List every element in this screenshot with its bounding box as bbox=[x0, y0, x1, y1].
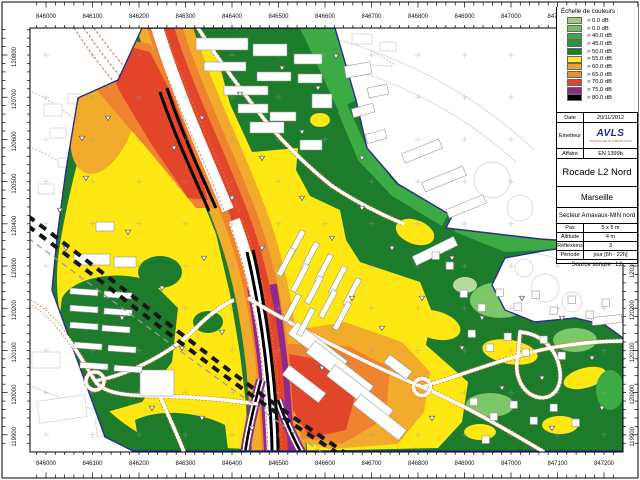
axis-label: 120800 bbox=[12, 46, 18, 67]
axis-label: 846800 bbox=[408, 14, 429, 20]
parameter-label: Réflexions bbox=[557, 242, 584, 250]
axis-label: 120300 bbox=[12, 257, 18, 278]
legend-entry-label: > 65.0 dB bbox=[587, 72, 612, 78]
axis-label: 846600 bbox=[315, 461, 336, 467]
project-title-row: Rocade L2 Nord bbox=[557, 158, 637, 186]
axis-label: 846500 bbox=[268, 14, 289, 20]
legend-entry-label: > 80.0 dB bbox=[587, 95, 612, 101]
axis-label: 120000 bbox=[630, 384, 636, 405]
legend-entry-label: > 0.0 dB bbox=[587, 26, 609, 32]
axis-label: 847100 bbox=[547, 461, 568, 467]
color-scale-legend: Échelle de couleurs : > 0.0 dB> 0.0 dB> … bbox=[556, 7, 638, 112]
parameter-label: Pas bbox=[557, 224, 584, 232]
legend-entry: > 60.0 dB bbox=[561, 63, 638, 71]
legend-entry: > 40.0 dB bbox=[561, 32, 638, 40]
source-row: Source sonore : L2 bbox=[557, 259, 637, 270]
axis-label: 846600 bbox=[315, 14, 336, 20]
axis-label: 120200 bbox=[630, 300, 636, 321]
axis-label: 846400 bbox=[222, 14, 243, 20]
sound-source: Source sonore : L2 bbox=[557, 260, 637, 270]
legend-entries: > 0.0 dB> 0.0 dB> 40.0 dB> 45.0 dB> 50.0… bbox=[561, 17, 638, 102]
legend-color-swatch bbox=[567, 71, 582, 78]
legend-color-swatch bbox=[567, 40, 582, 47]
legend-entry-label: > 60.0 dB bbox=[587, 64, 612, 70]
legend-color-swatch bbox=[567, 33, 582, 40]
emitter-logo-cell: AVLS ACOUSTIQUE VIBRATIONS bbox=[584, 123, 637, 148]
legend-entry-label: > 40.0 dB bbox=[587, 33, 612, 39]
parameter-value: 5 x 5 m bbox=[584, 224, 637, 232]
sector-name: Secteur Arnavaux-MIN nord bbox=[557, 208, 637, 223]
legend-color-swatch bbox=[567, 79, 582, 86]
legend-entry-label: > 0.0 dB bbox=[587, 18, 609, 24]
legend-color-swatch bbox=[567, 63, 582, 70]
parameter-row: Altitude4 m bbox=[557, 232, 637, 241]
axis-label: 120400 bbox=[12, 215, 18, 236]
parameter-value: 4 m bbox=[584, 233, 637, 241]
avls-logo-caption: ACOUSTIQUE VIBRATIONS bbox=[589, 140, 632, 143]
legend-entry-label: > 70.0 dB bbox=[587, 79, 612, 85]
axis-label: 120100 bbox=[12, 342, 18, 363]
axis-label: 120000 bbox=[12, 384, 18, 405]
avls-logo: AVLS bbox=[597, 129, 625, 139]
legend-color-swatch bbox=[567, 17, 582, 24]
parameter-rows: Pas5 x 5 mAltitude4 mRéflexions3Périodej… bbox=[557, 223, 637, 259]
emitter-row: Emetteur AVLS ACOUSTIQUE VIBRATIONS bbox=[557, 122, 637, 148]
axis-label: 846100 bbox=[82, 14, 103, 20]
legend-entry: > 55.0 dB bbox=[561, 55, 638, 63]
emitter-label: Emetteur bbox=[557, 123, 584, 148]
parameter-value: jour [6h - 22h] bbox=[584, 251, 637, 259]
legend-entry: > 70.0 dB bbox=[561, 79, 638, 87]
legend-entry: > 80.0 dB bbox=[561, 94, 638, 102]
info-panel: Date 20/11/2012 Emetteur AVLS ACOUSTIQUE… bbox=[556, 112, 638, 264]
legend-color-swatch bbox=[567, 25, 582, 32]
axis-label: 846200 bbox=[129, 461, 150, 467]
axis-label: 120100 bbox=[630, 342, 636, 363]
axis-label: 846100 bbox=[82, 461, 103, 467]
legend-entry: > 0.0 dB bbox=[561, 25, 638, 33]
parameter-row: Réflexions3 bbox=[557, 241, 637, 250]
noise-map-canvas: 8460008460008461008461008462008462008463… bbox=[0, 0, 640, 480]
axis-label: 846700 bbox=[361, 461, 382, 467]
parameter-label: Période bbox=[557, 251, 584, 259]
legend-entry-label: > 55.0 dB bbox=[587, 56, 612, 62]
project-title: Rocade L2 Nord bbox=[557, 159, 637, 186]
legend-color-swatch bbox=[567, 56, 582, 63]
parameter-row: Périodejour [6h - 22h] bbox=[557, 250, 637, 259]
axis-label: 120600 bbox=[12, 131, 18, 152]
parameter-label: Altitude bbox=[557, 233, 584, 241]
axis-label: 847000 bbox=[501, 461, 522, 467]
parameter-row: Pas5 x 5 m bbox=[557, 223, 637, 232]
axis-label: 846000 bbox=[36, 14, 57, 20]
axis-label: 847200 bbox=[594, 461, 615, 467]
legend-entry-label: > 45.0 dB bbox=[587, 41, 612, 47]
city-name: Marseille bbox=[557, 187, 637, 207]
legend-entry-label: > 50.0 dB bbox=[587, 49, 612, 55]
noise-map-page: 8460008460008461008461008462008462008463… bbox=[0, 0, 640, 480]
axis-label: 119900 bbox=[630, 426, 636, 446]
affaire-label: Affaire bbox=[557, 149, 584, 158]
axis-label: 120700 bbox=[12, 89, 18, 110]
axis-label: 846500 bbox=[268, 461, 289, 467]
grid-cross-overlay bbox=[30, 28, 623, 452]
legend-entry-label: > 75.0 dB bbox=[587, 87, 612, 93]
axis-label: 846900 bbox=[454, 14, 475, 20]
legend-entry: > 50.0 dB bbox=[561, 48, 638, 56]
legend-color-swatch bbox=[567, 94, 582, 101]
axis-label: 846700 bbox=[361, 14, 382, 20]
legend-color-swatch bbox=[567, 87, 582, 94]
legend-entry: > 0.0 dB bbox=[561, 17, 638, 25]
affaire-value: EN 1399b bbox=[584, 149, 637, 158]
date-label: Date bbox=[557, 113, 584, 122]
axis-label: 846900 bbox=[454, 461, 475, 467]
axis-label: 846300 bbox=[175, 461, 196, 467]
axis-label: 846800 bbox=[408, 461, 429, 467]
parameter-value: 3 bbox=[584, 242, 637, 250]
date-row: Date 20/11/2012 bbox=[557, 113, 637, 122]
axis-label: 120500 bbox=[12, 173, 18, 194]
city-row: Marseille bbox=[557, 186, 637, 207]
legend-color-swatch bbox=[567, 48, 582, 55]
legend-title: Échelle de couleurs : bbox=[561, 8, 638, 15]
axis-label: 120200 bbox=[12, 300, 18, 321]
date-value: 20/11/2012 bbox=[584, 113, 637, 122]
legend-entry: > 75.0 dB bbox=[561, 86, 638, 94]
axis-label: 846000 bbox=[36, 461, 57, 467]
axis-label: 846400 bbox=[222, 461, 243, 467]
axis-label: 119900 bbox=[12, 426, 18, 446]
axis-label: 846200 bbox=[129, 14, 150, 20]
sector-row: Secteur Arnavaux-MIN nord bbox=[557, 207, 637, 223]
affaire-row: Affaire EN 1399b bbox=[557, 148, 637, 158]
axis-label: 847000 bbox=[501, 14, 522, 20]
legend-entry: > 45.0 dB bbox=[561, 40, 638, 48]
axis-label: 846300 bbox=[175, 14, 196, 20]
legend-entry: > 65.0 dB bbox=[561, 71, 638, 79]
